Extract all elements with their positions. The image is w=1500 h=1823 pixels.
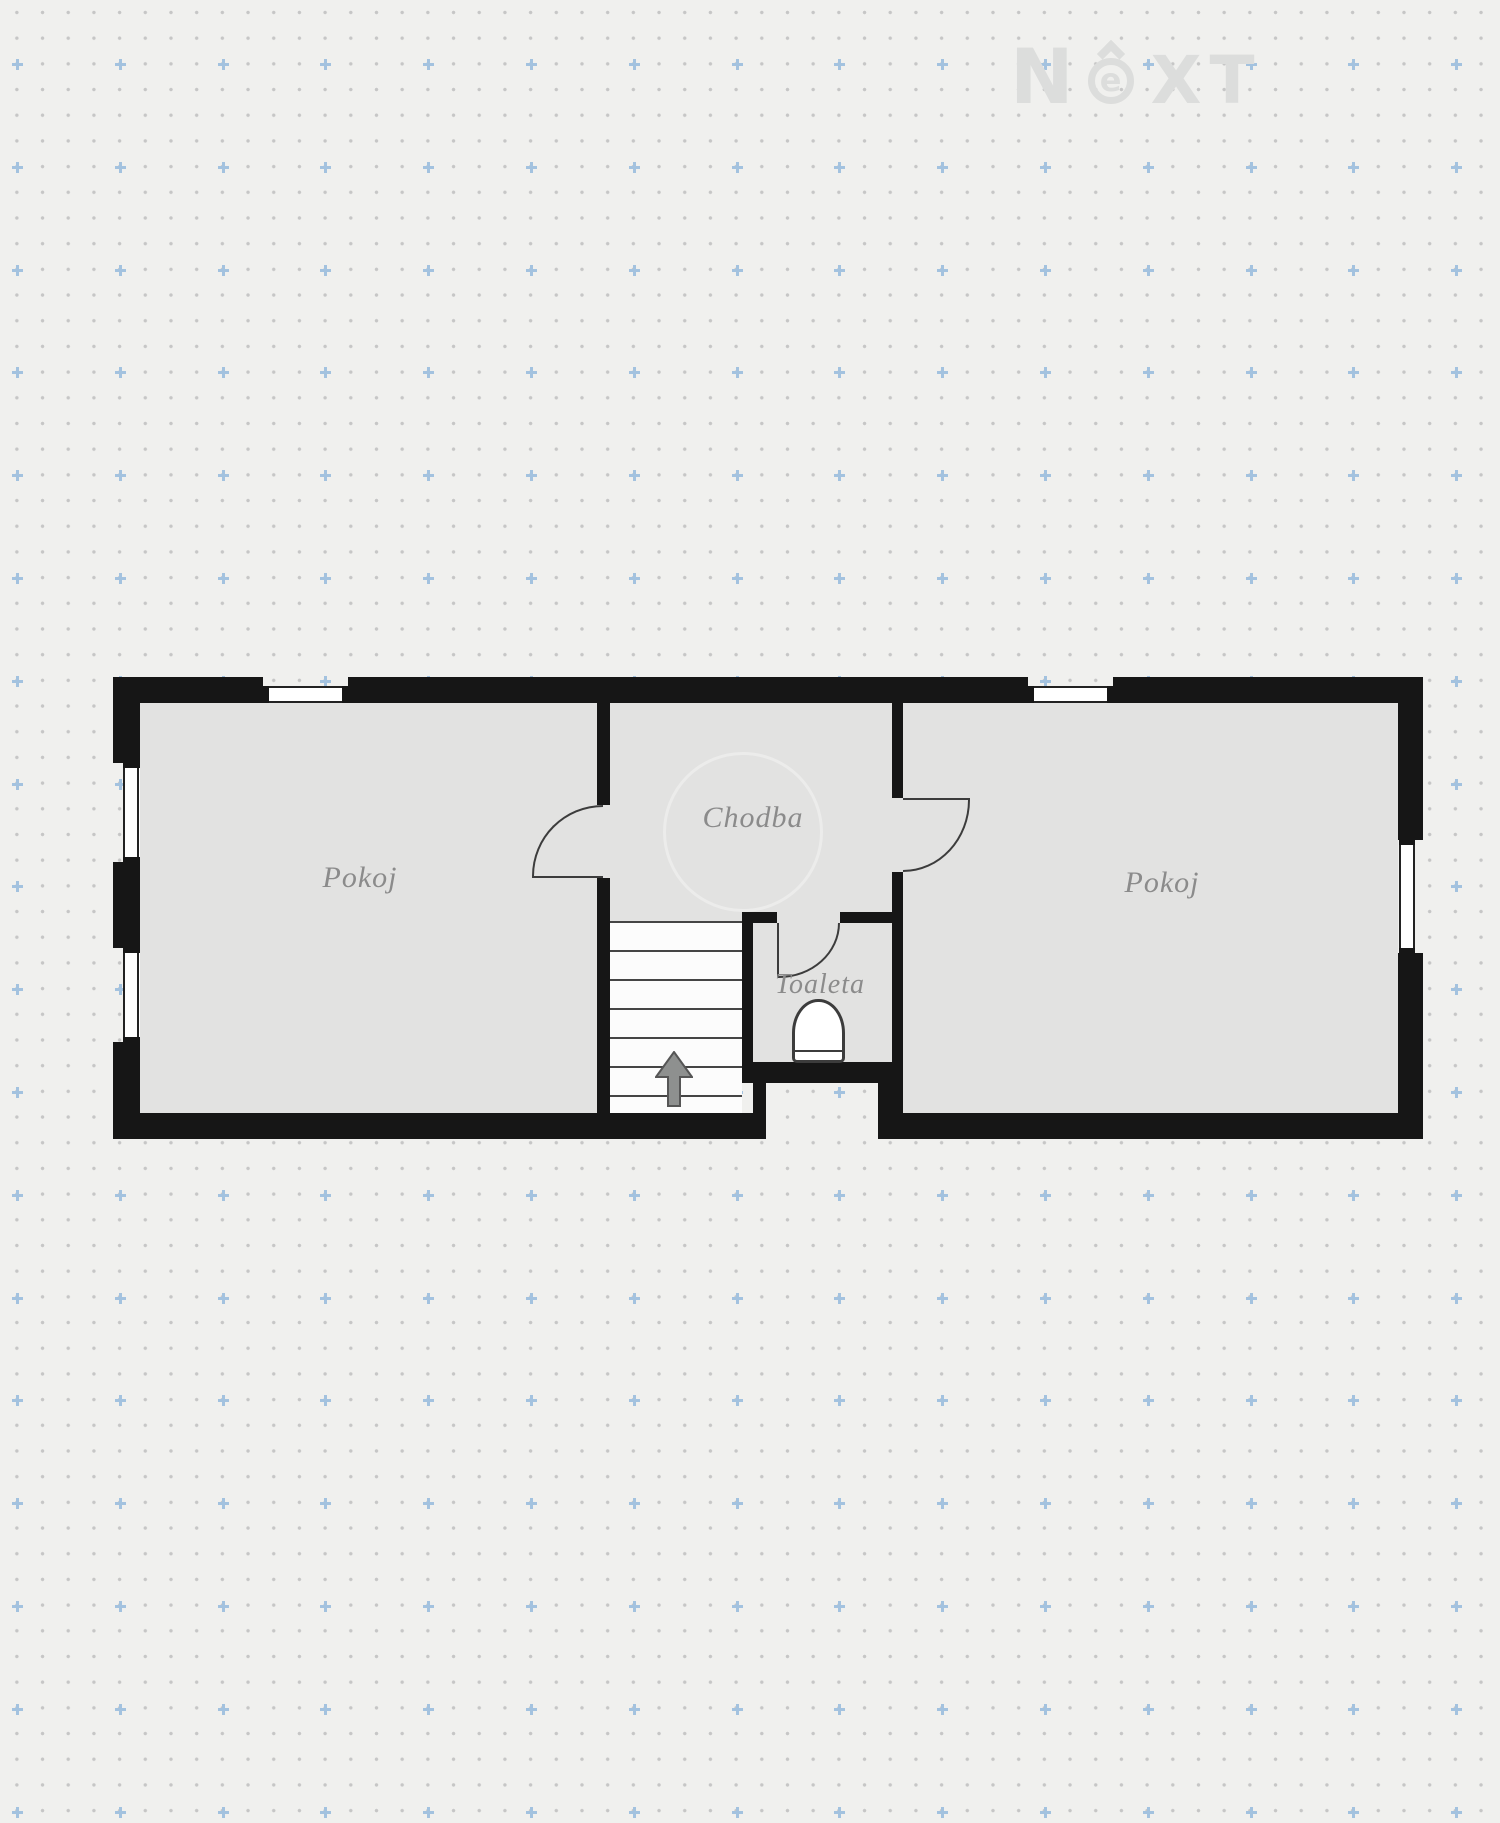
wall-toilet-top-a xyxy=(742,912,777,923)
wall-toilet-left xyxy=(742,923,753,1062)
wall-step-connector xyxy=(753,1083,766,1139)
wall-bottom-left xyxy=(113,1113,766,1139)
watermark-letter-e: e xyxy=(1100,64,1122,96)
door-opening-toilet xyxy=(777,912,840,923)
wall-right-upper xyxy=(1398,677,1423,840)
toilet-seat-line xyxy=(794,1050,843,1052)
window-top-left-room xyxy=(263,686,348,703)
door-leaf-left-room xyxy=(532,876,603,878)
wall-hall-left-lower xyxy=(597,878,610,1113)
room-label-chodba: Chodba xyxy=(702,801,803,835)
wall-left-pier xyxy=(113,862,140,948)
room-label-pokoj-right: Pokoj xyxy=(1125,866,1200,900)
wall-right-lower xyxy=(1398,953,1423,1139)
watermark-letter-t: T xyxy=(1210,55,1255,106)
wall-hall-right-upper xyxy=(892,703,903,798)
room-label-toaleta: Toaleta xyxy=(775,969,865,1001)
window-right-wall xyxy=(1399,840,1415,953)
window-top-right-room xyxy=(1028,686,1113,703)
wall-bottom-right xyxy=(878,1113,1423,1139)
watermark-letter-n: N xyxy=(1010,48,1074,106)
wall-top-right xyxy=(1113,677,1423,703)
wall-top-middle xyxy=(348,677,1028,703)
room-floor-right xyxy=(903,703,1398,1113)
floor-plan: Pokoj Chodba Toaleta Pokoj xyxy=(113,677,1423,1139)
room-floor-left xyxy=(140,703,597,1113)
watermark-letter-x: X xyxy=(1151,55,1202,106)
wall-left-upper xyxy=(113,677,140,763)
house-logo-icon: e xyxy=(1088,44,1134,104)
window-left-wall-upper xyxy=(123,763,140,862)
wall-hall-left-upper xyxy=(597,703,610,805)
toilet-icon xyxy=(792,999,845,1063)
window-left-wall-lower xyxy=(123,948,140,1042)
next-logo-watermark: N e X T xyxy=(1010,16,1255,106)
door-opening-right xyxy=(892,798,903,872)
wall-toilet-top-b xyxy=(840,912,903,923)
stairs-up-arrow-icon xyxy=(655,1051,693,1107)
room-label-pokoj-left: Pokoj xyxy=(323,861,398,895)
hallway-floor-strip xyxy=(610,912,742,921)
